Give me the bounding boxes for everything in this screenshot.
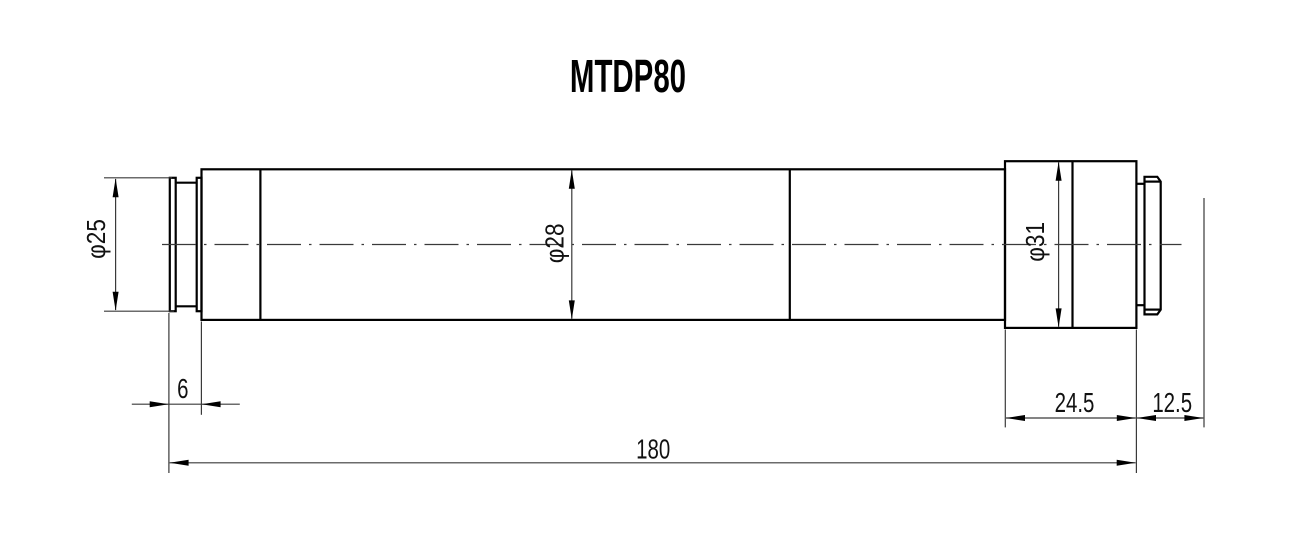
svg-text:24.5: 24.5 <box>1055 388 1095 419</box>
svg-text:180: 180 <box>636 435 670 466</box>
svg-text:φ28: φ28 <box>541 223 570 263</box>
svg-text:12.5: 12.5 <box>1152 388 1192 419</box>
svg-text:MTDP80: MTDP80 <box>570 51 686 102</box>
svg-text:φ25: φ25 <box>83 219 112 259</box>
svg-text:φ31: φ31 <box>1022 222 1051 262</box>
svg-text:6: 6 <box>177 374 188 405</box>
